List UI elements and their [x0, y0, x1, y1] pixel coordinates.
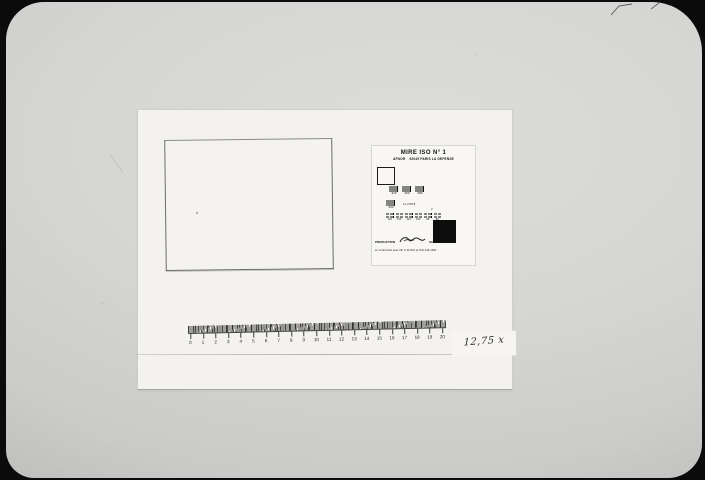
- ruler-number: 10: [312, 337, 320, 342]
- test-pattern-label: 112: [405, 218, 413, 221]
- ruler-number: 3: [224, 339, 232, 344]
- test-pattern-group: 125: [396, 213, 404, 221]
- ruler-number: 14: [363, 335, 371, 340]
- ruler-cm-tick: [442, 329, 443, 334]
- test-pattern-label: 100: [415, 218, 423, 221]
- test-pattern-group: 112: [405, 213, 413, 221]
- chart-title: MIRE ISO N° 1: [372, 150, 475, 156]
- test-pattern-block: [390, 213, 393, 215]
- ruler-cm-tick: [241, 333, 242, 338]
- chart-org: AFNOR: [393, 158, 405, 162]
- footer-production-label: PRODUCTION: [375, 241, 395, 244]
- ruler-cm-tick: [266, 333, 267, 338]
- dust-speck: [196, 212, 198, 214]
- photo-surface: MIRE ISO N° 1 AFNOR 92049 PARIS LA DEFEN…: [6, 2, 702, 478]
- chart-address: 92049 PARIS LA DEFENSE: [409, 158, 454, 162]
- dust-speck: [476, 54, 477, 55]
- test-pattern-block: [386, 213, 389, 215]
- ruler-cm-tick: [392, 330, 393, 335]
- test-pattern-label: 200: [386, 206, 396, 209]
- test-pattern-blocks: [405, 213, 413, 218]
- test-pattern-group: 250: [402, 186, 412, 195]
- ruler-cm-tick: [304, 332, 305, 337]
- ruler-cm-tick: [291, 332, 292, 337]
- ruler-cm-tick: [379, 330, 380, 335]
- test-pattern-group: 315: [389, 186, 399, 195]
- scribble-logo-icon: [398, 235, 426, 246]
- pattern-row-top: 315250280: [389, 186, 425, 195]
- ruler-number: 12: [338, 336, 346, 341]
- test-pattern-block: [389, 186, 394, 189]
- ruler-number: 13: [350, 336, 358, 341]
- test-pattern-block: [409, 213, 412, 215]
- test-pattern-block: [424, 213, 427, 215]
- test-pattern-block: [391, 200, 396, 203]
- pattern-mid-text: 112888: [403, 203, 416, 206]
- magnification-text: 12,75 x: [452, 334, 516, 350]
- iso-test-chart: MIRE ISO N° 1 AFNOR 92049 PARIS LA DEFEN…: [371, 145, 476, 266]
- test-pattern-label: 280: [415, 192, 425, 195]
- ruler-number: 1: [199, 339, 207, 344]
- test-pattern-blocks: [415, 213, 423, 218]
- test-pattern-group: 280: [415, 186, 425, 195]
- ruler-number: 19: [426, 334, 434, 339]
- test-pattern-block: [428, 213, 431, 215]
- test-pattern-block: [420, 186, 425, 189]
- ruler-number: 17: [400, 335, 408, 340]
- test-pattern-group: 200: [386, 200, 396, 209]
- ruler-number: 6: [262, 338, 270, 343]
- ruler-cm-tick: [228, 333, 229, 338]
- ruler-number: 4: [237, 338, 245, 343]
- test-pattern-block: [415, 186, 420, 189]
- test-pattern-block: [438, 213, 441, 215]
- ruler-cm-tick: [253, 333, 254, 338]
- ruler-cm-tick: [329, 331, 330, 336]
- dust-speck: [102, 302, 103, 304]
- pattern-row-mid: 200 112888 2: [386, 200, 472, 212]
- handwritten-magnification: 12,75 x: [452, 330, 516, 356]
- photo-print: MIRE ISO N° 1 AFNOR 92049 PARIS LA DEFEN…: [0, 0, 705, 480]
- chart-subtitle: AFNOR 92049 PARIS LA DEFENSE: [372, 158, 475, 162]
- ruler-number: 2: [212, 339, 220, 344]
- footer-maker-label: SCRIPTUM PARIS: [429, 241, 454, 244]
- ruler-number: 0: [186, 339, 194, 344]
- test-pattern-block: [434, 213, 437, 215]
- ruler-cm-tick: [190, 334, 191, 339]
- ruler-cm-tick: [215, 334, 216, 339]
- chart-footer: PRODUCTION SCRIPTUM PARIS: [372, 235, 475, 249]
- empty-frame: [164, 138, 334, 271]
- test-pattern-blocks: [396, 213, 404, 218]
- ruler-number: 18: [413, 334, 421, 339]
- test-pattern-block: [415, 213, 418, 215]
- chart-conformity-note: en conformité avec NF Z 43-010 et ISO 44…: [375, 249, 472, 252]
- test-pattern-block: [407, 186, 412, 189]
- ruler-cm-tick: [278, 332, 279, 337]
- ruler-cm-tick: [354, 331, 355, 336]
- ruler-number: 9: [300, 337, 308, 342]
- ruler-number: 7: [275, 337, 283, 342]
- test-pattern-blocks: [424, 213, 432, 218]
- ruler-number: 5: [249, 338, 257, 343]
- ruler-cm-tick: [316, 331, 317, 336]
- test-pattern-blocks: [386, 213, 394, 218]
- ruler-number: 11: [325, 336, 333, 341]
- test-pattern-label: 315: [389, 192, 399, 195]
- test-pattern-group: 140: [386, 213, 394, 221]
- pattern-mid-sub: 2: [431, 208, 433, 211]
- test-pattern-block: [405, 213, 408, 215]
- test-pattern-label: 90: [424, 218, 432, 221]
- test-pattern-block: [402, 186, 407, 189]
- ruler-number: 8: [287, 337, 295, 342]
- ruler-cm-tick: [430, 329, 431, 334]
- ruler-number: 20: [438, 334, 446, 339]
- test-pattern-group: 100: [415, 213, 423, 221]
- ruler-number: 15: [375, 335, 383, 340]
- ruler-cm-tick: [341, 331, 342, 336]
- outline-square: [377, 167, 395, 185]
- test-pattern-block: [400, 213, 403, 215]
- ruler-cm-tick: [203, 334, 204, 339]
- test-pattern-group: 90: [424, 213, 432, 221]
- test-pattern-blocks: [434, 213, 442, 218]
- test-pattern-label: 250: [402, 192, 412, 195]
- test-pattern-block: [396, 213, 399, 215]
- test-pattern-label: 140: [386, 218, 394, 221]
- ruler-cm-tick: [367, 330, 368, 335]
- ruler-number: 16: [388, 335, 396, 340]
- test-pattern-block: [394, 186, 399, 189]
- ruler-cm-tick: [404, 329, 405, 334]
- test-pattern-label: 125: [396, 218, 404, 221]
- test-pattern-block: [419, 213, 422, 215]
- ruler-cm-tick: [417, 329, 418, 334]
- test-pattern-block: [386, 200, 391, 203]
